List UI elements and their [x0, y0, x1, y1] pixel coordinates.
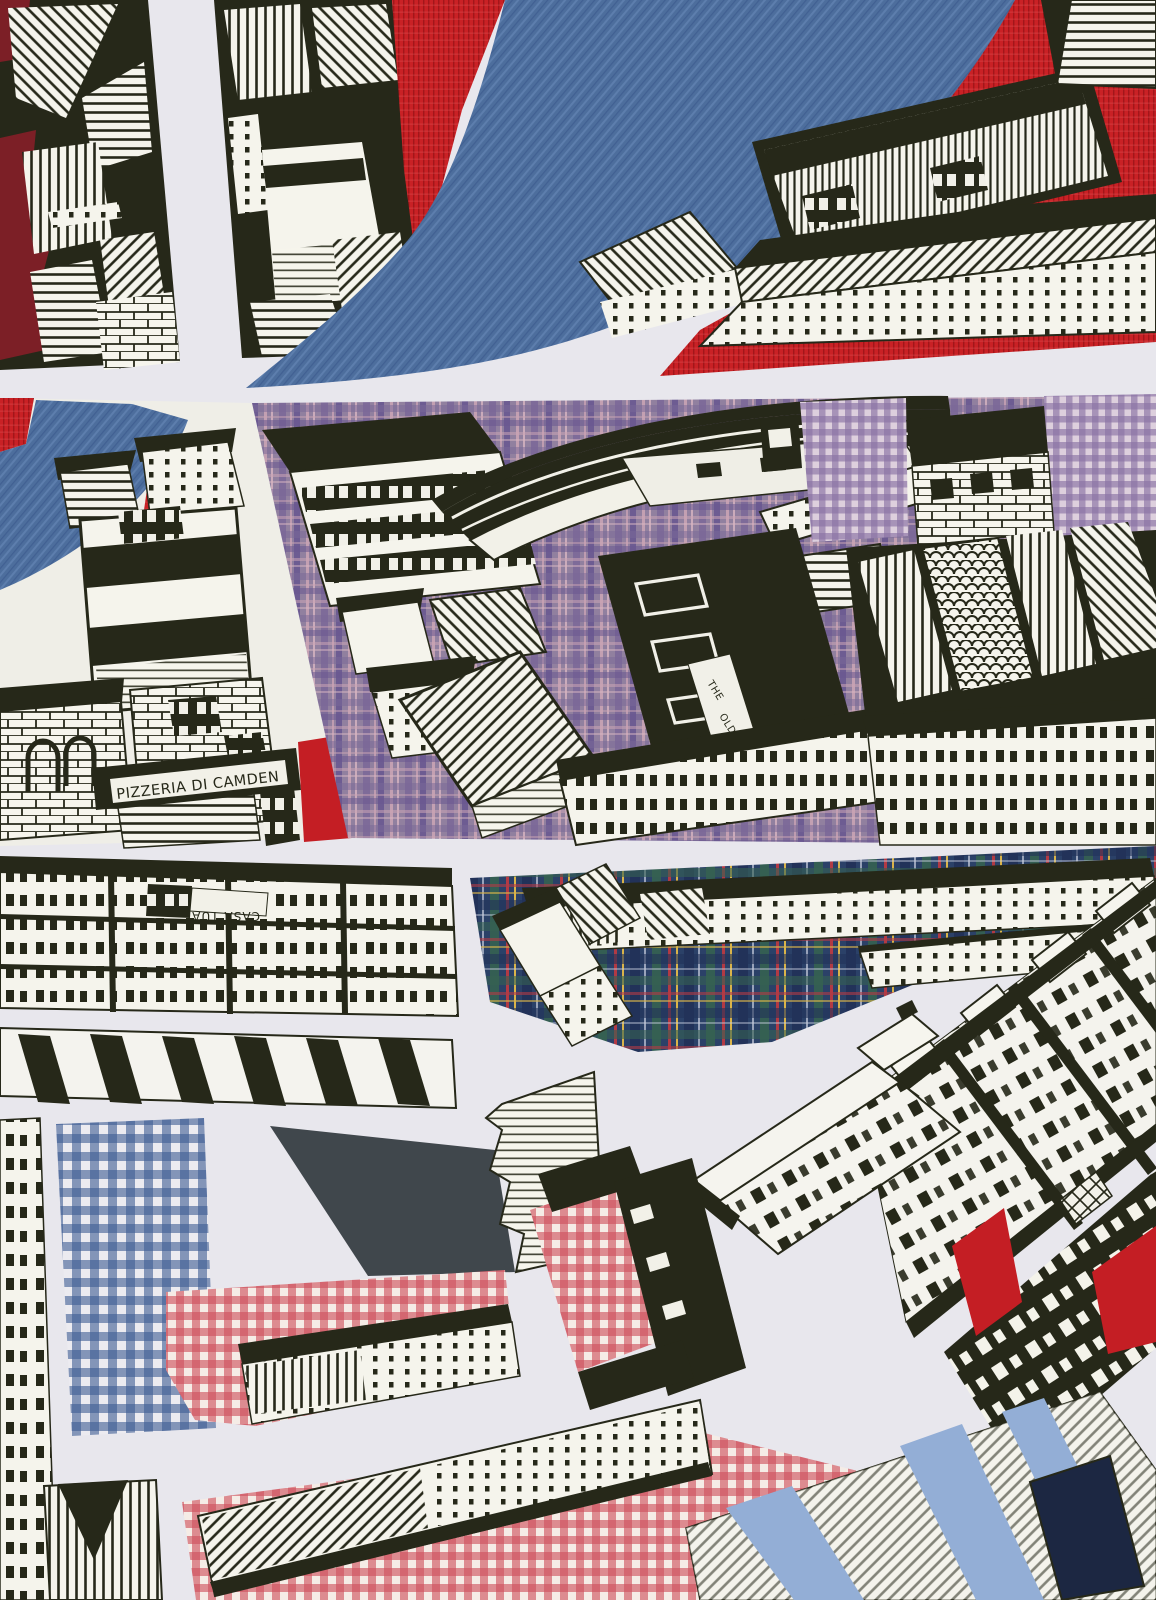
- central-plaid-block: THE OLD EAGLE: [252, 394, 1156, 845]
- collage-map-artwork: PIZZERIA DI CAMDEN THE OLD EAGLE: [0, 0, 1156, 1600]
- casa-tua-sign: CASA TUA: [191, 909, 260, 923]
- map-canvas: PIZZERIA DI CAMDEN THE OLD EAGLE: [0, 0, 1156, 1600]
- zigzag-shop-row: [0, 1028, 456, 1108]
- purple-gingham-patch-1: [800, 398, 908, 542]
- striped-arrow-building: [44, 1480, 162, 1600]
- roof-terrace-row: [846, 522, 1156, 722]
- purple-gingham-patch-2: [1044, 394, 1156, 540]
- top-right-corner-building: [1042, 0, 1156, 88]
- casa-tua-terrace: CASA TUA: [0, 856, 458, 1016]
